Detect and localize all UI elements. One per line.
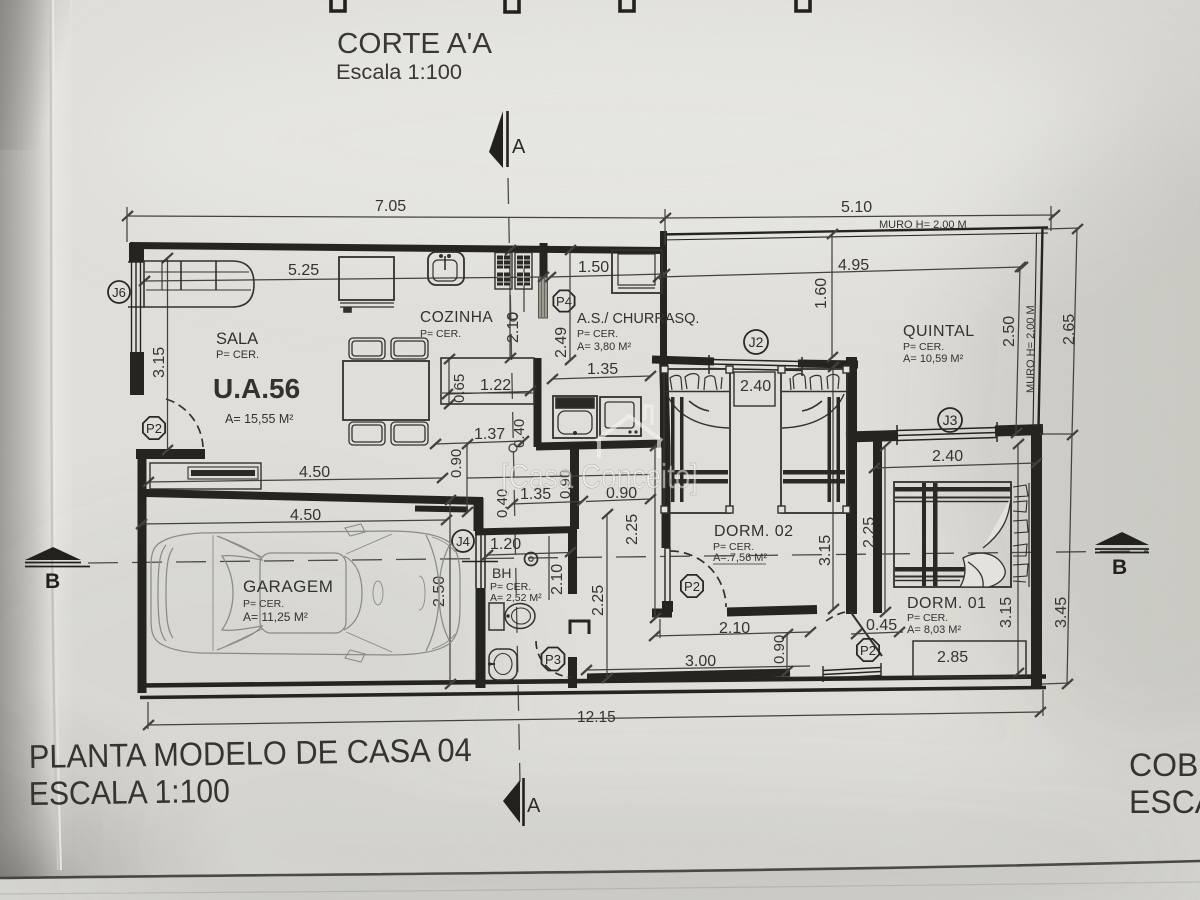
svg-text:4.50: 4.50 — [290, 507, 321, 524]
svg-text:A= 8,03 M²: A= 8,03 M² — [907, 624, 961, 636]
svg-text:2.25: 2.25 — [861, 517, 878, 548]
svg-text:SALA: SALA — [216, 330, 258, 348]
svg-text:1.22: 1.22 — [480, 377, 511, 394]
svg-text:QUINTAL: QUINTAL — [903, 323, 975, 340]
svg-text:A= 15,55 M²: A= 15,55 M² — [225, 412, 293, 426]
svg-text:P2: P2 — [684, 579, 700, 594]
svg-text:P= CER.: P= CER. — [216, 349, 259, 361]
svg-text:1.37: 1.37 — [474, 426, 505, 443]
svg-text:B: B — [1112, 556, 1127, 579]
svg-text:0.45: 0.45 — [866, 617, 897, 634]
svg-text:1.60: 1.60 — [813, 278, 830, 309]
svg-text:P= CER.: P= CER. — [903, 341, 944, 353]
svg-text:A: A — [512, 136, 526, 158]
svg-text:ESCALA 1:100: ESCALA 1:100 — [29, 772, 231, 812]
svg-text:1.20: 1.20 — [490, 536, 521, 553]
svg-text:P= CER.: P= CER. — [577, 328, 618, 340]
svg-text:BH: BH — [492, 565, 511, 581]
svg-text:B: B — [45, 570, 60, 593]
svg-text:A= 3,80 M²: A= 3,80 M² — [577, 341, 631, 353]
svg-text:2.50: 2.50 — [1001, 316, 1018, 347]
svg-text:2.40: 2.40 — [740, 378, 771, 395]
svg-text:0.40: 0.40 — [511, 419, 528, 448]
svg-text:A= 10,59 M²: A= 10,59 M² — [903, 353, 964, 365]
svg-text:2.49: 2.49 — [553, 327, 570, 358]
svg-text:P2: P2 — [860, 643, 876, 658]
svg-text:P= CER.: P= CER. — [243, 598, 284, 610]
svg-text:GARAGEM: GARAGEM — [243, 577, 333, 596]
svg-text:3.15: 3.15 — [998, 597, 1015, 628]
svg-text:MURO H= 2,00 M: MURO H= 2,00 M — [1025, 305, 1037, 393]
svg-text:5.10: 5.10 — [841, 199, 872, 216]
svg-text:7.05: 7.05 — [375, 198, 406, 215]
svg-text:A.S./ CHURRASQ.: A.S./ CHURRASQ. — [577, 311, 699, 327]
svg-text:MURO H= 2,00 M: MURO H= 2,00 M — [879, 219, 967, 231]
svg-text:COZINHA: COZINHA — [420, 309, 493, 326]
svg-text:COBERT: COBERT — [1129, 747, 1200, 783]
svg-text:[Casa Conceito]: [Casa Conceito] — [501, 458, 698, 496]
svg-text:A= 2,52 M²: A= 2,52 M² — [490, 592, 542, 604]
svg-text:2.25: 2.25 — [590, 585, 607, 616]
svg-text:0.65: 0.65 — [451, 374, 468, 403]
svg-text:1.35: 1.35 — [587, 361, 618, 378]
svg-text:J4: J4 — [456, 534, 470, 549]
svg-text:4.95: 4.95 — [838, 257, 869, 274]
svg-text:ESCAL: ESCAL — [1129, 784, 1200, 820]
svg-text:0.90: 0.90 — [771, 635, 788, 664]
svg-text:2.25: 2.25 — [624, 514, 641, 545]
svg-text:P2: P2 — [146, 421, 162, 436]
svg-text:3.45: 3.45 — [1053, 597, 1070, 628]
svg-text:5.25: 5.25 — [288, 262, 319, 279]
svg-text:PLANTA MODELO DE CASA 04: PLANTA MODELO DE CASA 04 — [29, 731, 473, 775]
svg-text:J2: J2 — [749, 334, 764, 350]
svg-text:P= CER.: P= CER. — [907, 612, 948, 624]
svg-text:3.15: 3.15 — [151, 347, 168, 378]
svg-text:A: A — [527, 795, 541, 817]
svg-text:CORTE A'A: CORTE A'A — [337, 28, 493, 60]
svg-text:U.A.56: U.A.56 — [213, 373, 300, 404]
svg-text:P= CER.: P= CER. — [420, 328, 461, 340]
svg-text:A=.7,56 M²: A=.7,56 M² — [713, 552, 767, 564]
svg-text:2.40: 2.40 — [932, 448, 963, 465]
svg-text:DORM. 02: DORM. 02 — [714, 523, 794, 540]
svg-text:2.10: 2.10 — [549, 564, 566, 595]
svg-text:0.90: 0.90 — [448, 449, 465, 478]
svg-text:1.50: 1.50 — [578, 259, 609, 276]
svg-text:12.15: 12.15 — [577, 709, 616, 726]
svg-text:2.10: 2.10 — [505, 312, 522, 343]
svg-text:A= 11,25 M²: A= 11,25 M² — [243, 610, 308, 624]
svg-text:Escala 1:100: Escala 1:100 — [336, 61, 462, 84]
svg-text:2.85: 2.85 — [937, 649, 968, 666]
svg-text:J3: J3 — [943, 412, 958, 428]
svg-text:3.15: 3.15 — [817, 535, 834, 566]
svg-text:4.50: 4.50 — [299, 464, 330, 481]
svg-text:2.65: 2.65 — [1061, 314, 1078, 345]
svg-text:3.00: 3.00 — [685, 653, 716, 670]
svg-text:2.10: 2.10 — [719, 620, 750, 637]
svg-text:J6: J6 — [112, 285, 126, 300]
svg-text:P3: P3 — [545, 652, 561, 667]
svg-text:DORM. 01: DORM. 01 — [907, 595, 987, 612]
